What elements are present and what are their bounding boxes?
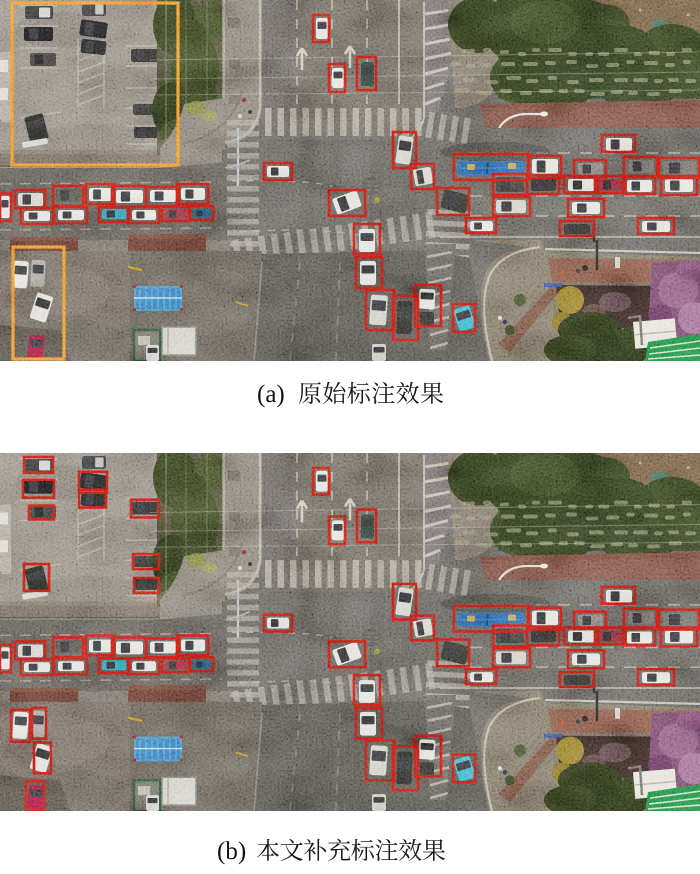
svg-text:(b): (b) <box>217 838 246 865</box>
svg-text:(a): (a) <box>257 381 285 408</box>
